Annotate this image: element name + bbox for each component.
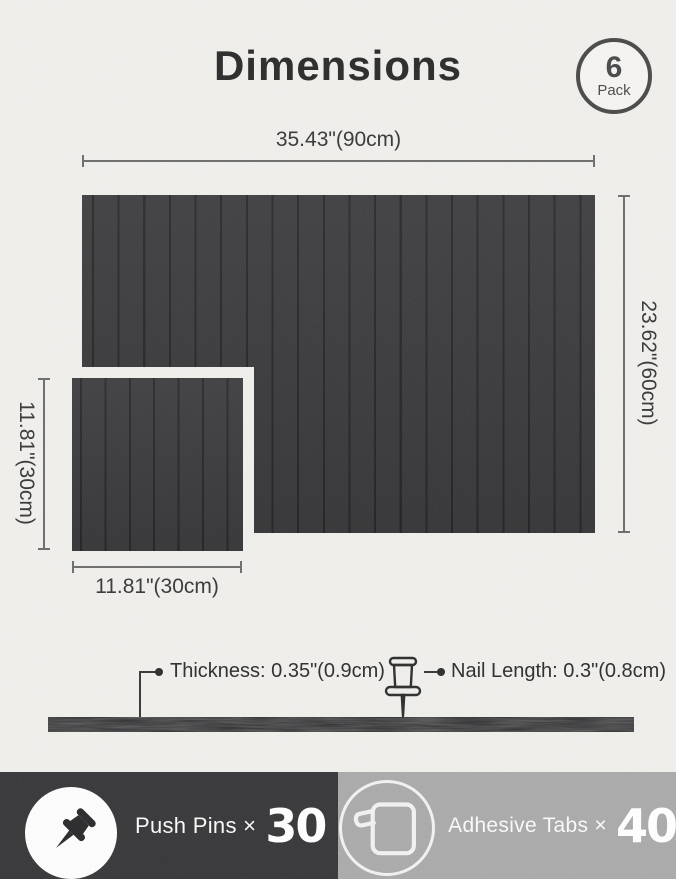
panel-edge-bar — [48, 717, 634, 732]
small-panel — [61, 367, 254, 562]
thickness-label: Thickness: 0.35"(0.9cm) — [170, 660, 385, 683]
accessories-banner: Push Pins × 30 Adhesive Tabs × 40 — [0, 772, 676, 879]
thickness-leader-dot — [155, 668, 163, 676]
dimension-line-height-small — [43, 378, 45, 550]
nail-length-label: Nail Length: 0.3"(0.8cm) — [451, 660, 666, 683]
nail-leader-dot — [437, 668, 445, 676]
dimension-line-height-large — [623, 195, 625, 533]
thickness-leader-vertical — [139, 671, 141, 717]
dimension-label-width-small: 11.81"(30cm) — [72, 575, 242, 599]
push-pins-count: 30 — [265, 803, 325, 849]
dimension-line-width-large — [82, 160, 595, 162]
push-pins-label: Push Pins × — [135, 813, 256, 839]
adhesive-tabs-label: Adhesive Tabs × — [448, 814, 607, 838]
pushpin-icon-circle — [25, 787, 117, 879]
pack-count-badge: 6 Pack — [576, 38, 652, 114]
adhesive-tab-icon — [345, 786, 429, 870]
pushpin-icon — [43, 805, 99, 861]
pushpin-outline-icon — [381, 656, 425, 718]
felt-texture — [48, 717, 634, 732]
adhesive-tabs-count: 40 — [616, 803, 676, 849]
adhesive-tab-icon-circle — [339, 780, 435, 876]
thickness-leader-horizontal — [139, 671, 156, 673]
dimension-line-width-small — [72, 566, 242, 568]
pack-unit: Pack — [597, 83, 630, 98]
dimension-label-width-large: 35.43"(90cm) — [82, 128, 595, 152]
pack-count: 6 — [606, 54, 623, 82]
product-dimensions-infographic: Dimensions 6 Pack 35.43"(90cm) 23.62"(60… — [0, 0, 676, 879]
page-title: Dimensions — [0, 42, 676, 90]
adhesive-tabs-section: Adhesive Tabs × 40 — [338, 772, 676, 879]
dimension-label-height-large: 23.62"(60cm) — [636, 253, 660, 473]
dimension-label-height-small: 11.81"(30cm) — [14, 353, 38, 573]
push-pins-section: Push Pins × 30 — [0, 772, 338, 879]
